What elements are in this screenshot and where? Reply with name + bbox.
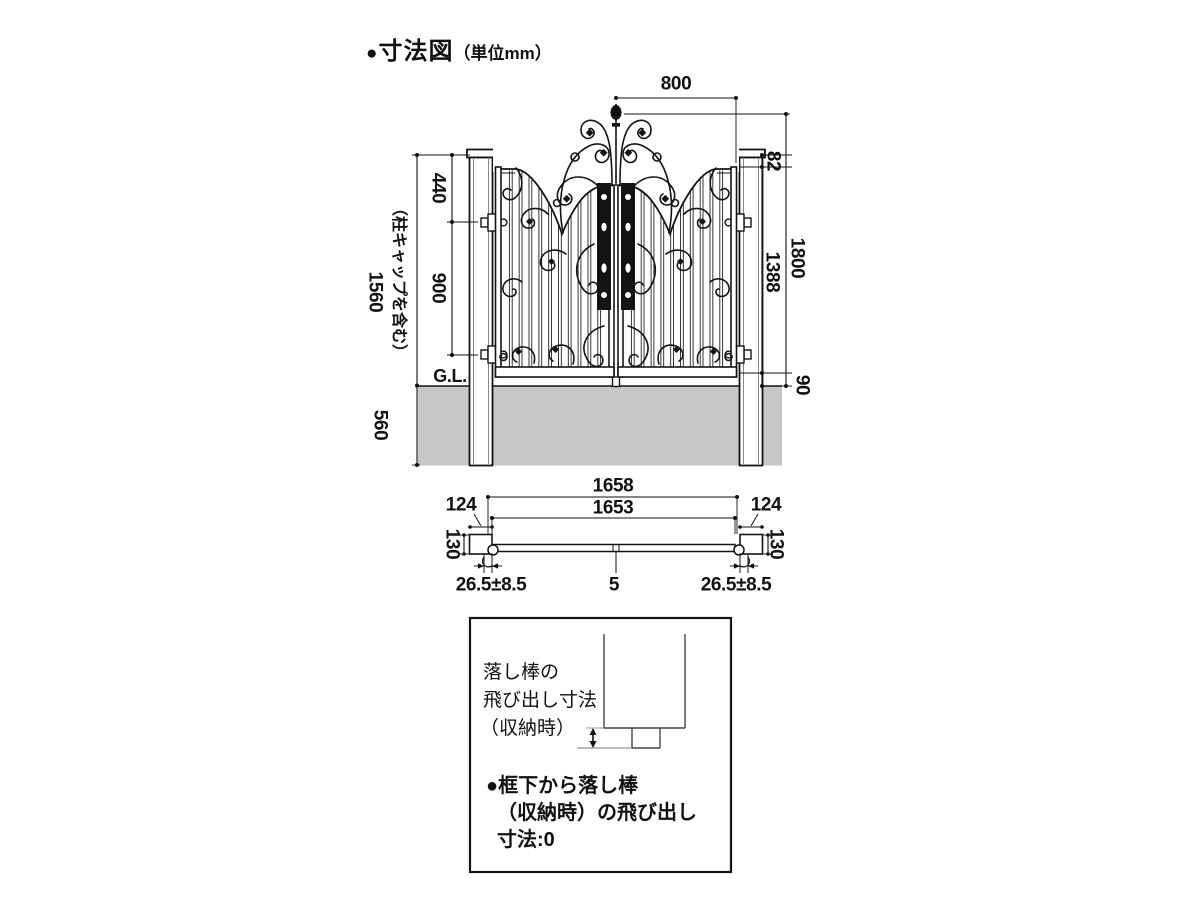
dim-cap-to-rail: 82 xyxy=(764,151,783,171)
dim-post-height: 1560 xyxy=(366,272,385,313)
dim-hinge-offset-left: 26.5±8.5 xyxy=(456,576,527,595)
detail-label-line1: 落し棒の xyxy=(483,663,559,682)
title-unit: （単位mm） xyxy=(453,39,551,64)
title-bullet-icon: ● xyxy=(366,43,377,65)
dim-post-depth-right: 130 xyxy=(767,529,786,560)
detail-note-line3: 寸法:0 xyxy=(497,830,555,850)
ground-line-label: G.L. xyxy=(433,367,466,385)
drop-rod xyxy=(613,377,620,387)
dim-embed-depth: 560 xyxy=(371,410,390,441)
dim-overall-width: 1658 xyxy=(593,477,634,496)
dim-gate-height: 1800 xyxy=(788,238,807,279)
dimension-diagram-page: ● 寸法図 （単位mm） 800 82 1388 1800 90 440 900… xyxy=(0,0,1200,900)
dim-hinge-offset-right: 26.5±8.5 xyxy=(701,576,772,595)
page-title: ● 寸法図 （単位mm） xyxy=(366,31,552,66)
detail-label-line2: 飛び出し寸法 xyxy=(483,691,597,710)
detail-note-line2: （収納時）の飛び出し xyxy=(497,803,697,823)
drawing-linework xyxy=(0,0,1200,900)
dim-post-width-right: 124 xyxy=(751,496,782,515)
dim-post-height-note: （柱キャップを含む） xyxy=(390,200,406,360)
dim-hinge-span: 900 xyxy=(429,273,448,304)
dim-leaf-width: 800 xyxy=(661,75,692,94)
dim-leaf-height: 1388 xyxy=(763,252,782,293)
gate-left-leaf xyxy=(493,98,616,377)
plan-left-post xyxy=(459,514,502,573)
dim-ground-clearance: 90 xyxy=(793,375,812,395)
dim-post-top-to-hinge: 440 xyxy=(429,173,448,204)
elevation-view xyxy=(412,96,792,467)
dim-post-width-left: 124 xyxy=(446,496,477,515)
title-text: 寸法図 xyxy=(378,31,453,66)
dim-inner-width: 1653 xyxy=(593,499,634,518)
gate-right-leaf xyxy=(616,98,739,377)
detail-label-line3: （収納時） xyxy=(480,719,575,738)
dim-post-depth-left: 130 xyxy=(443,529,462,560)
detail-note-line1: ●框下から落し棒 xyxy=(486,776,638,796)
dim-center-gap: 5 xyxy=(609,576,619,595)
